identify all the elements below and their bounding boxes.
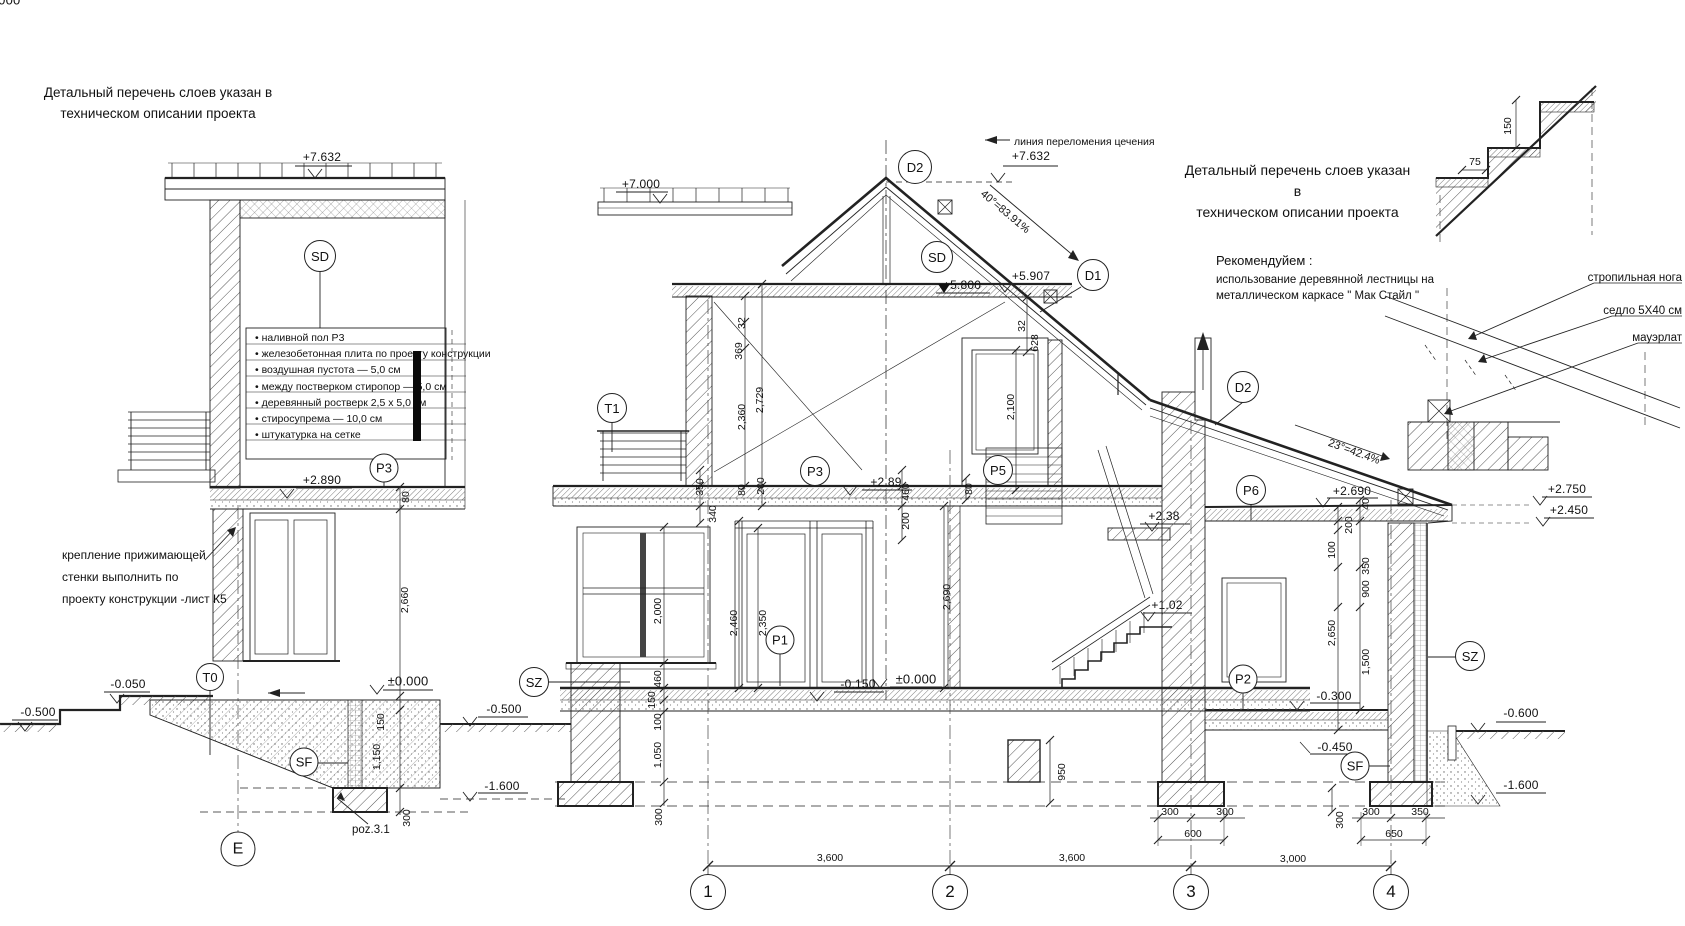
tag-t1: T1 <box>597 393 627 423</box>
dim: 200 <box>755 477 767 495</box>
elev-ground-left-sec: -0.500 <box>20 705 55 719</box>
layer-item: • между постверком стиропор — 5,0 см <box>250 379 491 395</box>
dim: 3,000 <box>1280 853 1306 865</box>
layer-item: • стиросупрема — 10,0 см <box>250 411 491 427</box>
rafter-leg-label: стропильная нога <box>1542 268 1682 289</box>
dim: 460 <box>900 483 912 501</box>
elev-ground-right: -0.600 <box>1503 706 1538 720</box>
dim: 650 <box>1385 828 1403 840</box>
layer-list: • наливной пол Р3 • железобетонная плита… <box>250 330 491 443</box>
dim: 300 <box>401 809 413 827</box>
dim: 80 <box>400 491 412 503</box>
dim: 2,729 <box>754 387 766 413</box>
dim: 340 <box>707 505 719 523</box>
dim: 2,460 <box>728 610 740 636</box>
elev-eave-top: +2.750 <box>1548 482 1586 496</box>
dim: 1,050 <box>652 742 664 768</box>
elev-stair-ceiling: +2.38 <box>1148 509 1179 523</box>
tag-t0: T0 <box>196 663 224 691</box>
dim: 150 <box>1502 117 1514 135</box>
layer-item: • воздушная пустота — 5,0 см <box>250 362 491 378</box>
dim: 75 <box>1469 156 1481 168</box>
dim: 32 <box>1016 320 1028 332</box>
dim: 150 <box>646 691 658 709</box>
recommend-body: использование деревянной лестницы на мет… <box>1216 272 1434 304</box>
elev-zero-left: ±0.000 <box>0 0 20 8</box>
poz-label: poz.3.1 <box>352 820 390 841</box>
dim: 80 <box>963 483 975 495</box>
dim: 300 <box>1161 806 1179 818</box>
elev-left-floor: +2.890 <box>303 473 341 487</box>
axis-4: 4 <box>1373 874 1409 910</box>
tag-sf-right: SF <box>1341 752 1370 781</box>
tag-p3-left: P3 <box>370 454 399 483</box>
tag-p2: P2 <box>1229 665 1258 694</box>
dim: 300 <box>1216 806 1234 818</box>
tag-sf-left: SF <box>290 748 319 777</box>
tag-sz-left: SZ <box>519 667 549 697</box>
dim: 460 <box>652 670 664 688</box>
dim: 2,000 <box>652 598 664 624</box>
layer-item: • штукатурка на сетке <box>250 427 491 443</box>
elev-slab-drop: -0.150 <box>840 677 875 691</box>
tag-sd-left: SD <box>304 240 336 272</box>
drawing-labels: Детальный перечень слоев указан в технич… <box>0 0 1685 926</box>
dim: 150 <box>375 713 387 731</box>
elev-attic-floor: +5.800 <box>943 278 981 292</box>
wall-fixing-note: крепление прижимающей стенки выполнить п… <box>62 544 227 610</box>
elev-left-roof: +7.632 <box>303 150 341 164</box>
dim: 1,150 <box>371 744 383 770</box>
dim: 2,360 <box>736 404 748 430</box>
elev-terrace: -0.050 <box>110 677 145 691</box>
elev-main-ridge: +7.632 <box>1012 149 1050 163</box>
dim: 3,600 <box>817 852 843 864</box>
dim: 350 <box>694 478 706 496</box>
tag-p1: P1 <box>766 626 795 655</box>
tag-d2-top: D2 <box>898 150 932 184</box>
dim: 1,500 <box>1360 649 1372 675</box>
dim: 200 <box>1343 516 1355 534</box>
layer-item: • наливной пол Р3 <box>250 330 491 346</box>
tag-p5: P5 <box>983 455 1013 485</box>
elev-attic-top: +5.907 <box>1012 269 1050 283</box>
dim: 2,660 <box>399 587 411 613</box>
axis-3: 3 <box>1173 874 1209 910</box>
dim: 2,690 <box>941 584 953 610</box>
dim: 300 <box>1334 811 1346 829</box>
elev-ground-left-main: -0.500 <box>486 702 521 716</box>
dim: 628 <box>1029 334 1041 352</box>
dim: 2,650 <box>1326 620 1338 646</box>
tag-d1: D1 <box>1077 259 1109 291</box>
dim: 100 <box>1326 541 1338 559</box>
elev-zero-left2: ±0.000 <box>388 674 429 689</box>
elev-main-floor1: +2.89 <box>870 475 901 489</box>
slope-main-roof: 40°=83.91% <box>978 188 1032 236</box>
dim: 900 <box>1360 580 1372 598</box>
elev-wing-ceiling: +2.690 <box>1333 484 1371 498</box>
layer-item: • деревянный ростверк 2,5 х 5,0 см <box>250 395 491 411</box>
dim: 950 <box>1056 763 1068 781</box>
axis-2: 2 <box>932 874 968 910</box>
dim: 369 <box>733 342 745 360</box>
dim: 3,600 <box>1059 852 1085 864</box>
layer-item: • железобетонная плита по проекту констр… <box>250 346 491 362</box>
dim: 300 <box>1362 806 1380 818</box>
dim: 2,100 <box>1005 394 1017 420</box>
elev-eave-bottom: +2.450 <box>1550 503 1588 517</box>
slope-low-roof: 23°=42.4% <box>1326 437 1381 467</box>
elev-zero-main: ±0.000 <box>896 672 937 687</box>
elev-found-right: -1.600 <box>1503 778 1538 792</box>
tag-p3-main: P3 <box>800 456 830 486</box>
tag-sz-right: SZ <box>1455 641 1485 671</box>
axis-1: 1 <box>690 874 726 910</box>
dim: 40 <box>1360 498 1372 510</box>
dim: 80 <box>736 484 748 496</box>
tag-d2-right: D2 <box>1227 371 1259 403</box>
layers-note-right: Детальный перечень слоев указан в технич… <box>1180 160 1415 223</box>
elev-wing-sub: -0.450 <box>1317 740 1352 754</box>
axis-e: E <box>221 832 256 867</box>
dim: 350 <box>1411 806 1429 818</box>
section-cut-bar <box>413 351 421 441</box>
tag-p6: P6 <box>1236 475 1266 505</box>
dim: 200 <box>900 512 912 530</box>
elev-canopy: +7.000 <box>622 177 660 191</box>
dim: 350 <box>1360 557 1372 575</box>
dim: 32 <box>736 317 748 329</box>
architectural-section-drawing: { "notes": { "layers_note_left": ["Детал… <box>0 0 1685 926</box>
recommend-title: Рекомендуйем : <box>1216 250 1312 271</box>
mauerlat-label: мауэрлат <box>1542 328 1682 349</box>
elev-stair-landing: +1.02 <box>1151 598 1182 612</box>
dim: 600 <box>1184 828 1202 840</box>
tag-sd-main: SD <box>921 241 953 273</box>
dim: 300 <box>653 808 665 826</box>
layers-note-left: Детальный перечень слоев указан в технич… <box>42 82 274 124</box>
saddle-label: седло 5Х40 см <box>1542 301 1682 322</box>
dim: 100 <box>652 713 664 731</box>
elev-found-left-main: -1.600 <box>484 779 519 793</box>
elev-wing-floor: -0.300 <box>1316 689 1351 703</box>
